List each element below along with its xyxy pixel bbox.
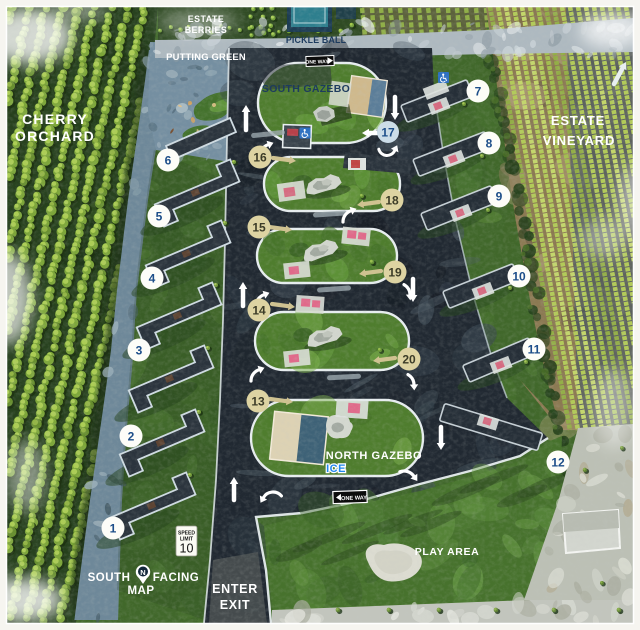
svg-text:ONE WAY: ONE WAY <box>305 59 329 66</box>
svg-text:15: 15 <box>252 220 266 234</box>
svg-text:CHERRY: CHERRY <box>22 111 88 127</box>
svg-text:18: 18 <box>385 193 399 207</box>
svg-text:7: 7 <box>475 84 482 98</box>
svg-text:MAP: MAP <box>127 585 154 597</box>
svg-text:1: 1 <box>110 521 117 535</box>
svg-text:SOUTH: SOUTH <box>88 572 131 584</box>
svg-text:VINEYARD: VINEYARD <box>543 133 615 148</box>
svg-text:PLAY AREA: PLAY AREA <box>415 546 480 558</box>
svg-text:FACING: FACING <box>153 572 199 584</box>
svg-text:ICE: ICE <box>326 463 346 475</box>
svg-text:9: 9 <box>496 189 503 203</box>
svg-text:ORCHARD: ORCHARD <box>15 128 95 144</box>
svg-text:4: 4 <box>149 271 156 285</box>
svg-text:PUTTING GREEN: PUTTING GREEN <box>166 51 246 62</box>
svg-text:ESTATE: ESTATE <box>551 113 605 128</box>
svg-text:11: 11 <box>528 342 541 356</box>
svg-text:6: 6 <box>165 153 172 167</box>
svg-text:8: 8 <box>486 136 493 150</box>
svg-text:10: 10 <box>180 542 194 556</box>
svg-text:19: 19 <box>388 265 402 279</box>
svg-text:12: 12 <box>551 455 565 469</box>
svg-text:PICKLE BALL: PICKLE BALL <box>286 35 347 45</box>
svg-text:17: 17 <box>381 125 395 139</box>
svg-text:EXIT: EXIT <box>220 598 251 612</box>
svg-text:16: 16 <box>253 150 267 164</box>
svg-text:10: 10 <box>512 269 526 283</box>
svg-text:5: 5 <box>156 209 163 223</box>
svg-text:3: 3 <box>136 343 143 357</box>
svg-text:ENTER: ENTER <box>212 582 258 596</box>
svg-text:13: 13 <box>251 394 265 408</box>
svg-text:NORTH GAZEBO: NORTH GAZEBO <box>326 450 422 462</box>
svg-text:2: 2 <box>128 429 135 443</box>
svg-text:N: N <box>140 568 145 577</box>
svg-text:SOUTH GAZEBO: SOUTH GAZEBO <box>262 83 350 95</box>
svg-text:ESTATE: ESTATE <box>188 14 224 24</box>
svg-text:20: 20 <box>402 352 416 366</box>
svg-text:14: 14 <box>252 303 266 317</box>
svg-text:ONE WAY: ONE WAY <box>341 495 367 502</box>
svg-text:BERRIES: BERRIES <box>185 25 228 35</box>
